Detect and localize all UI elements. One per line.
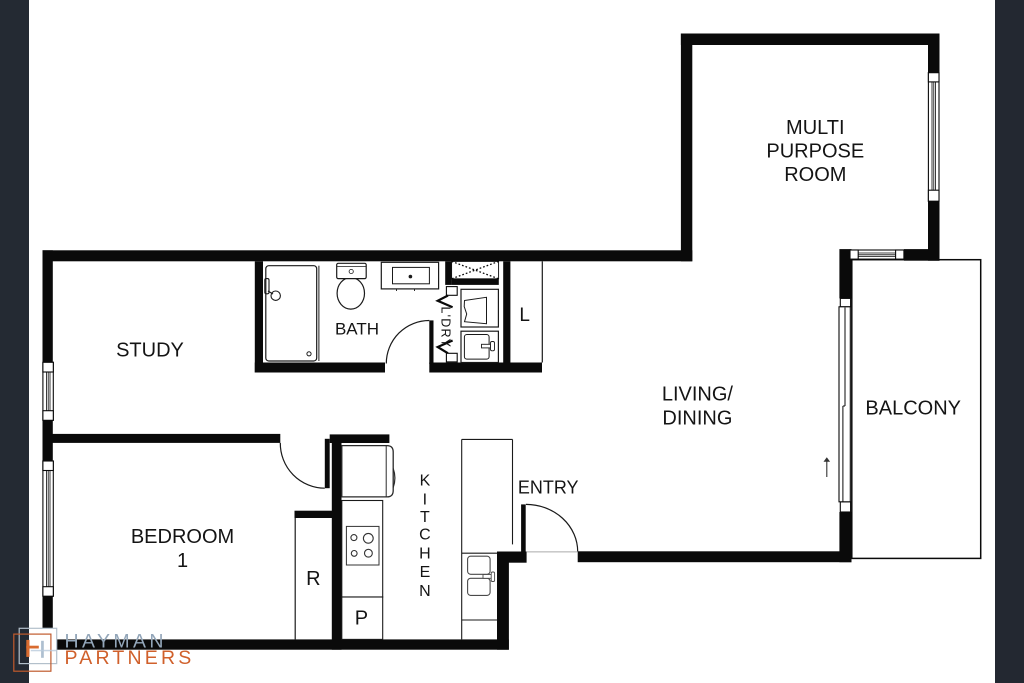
svg-text:STUDY: STUDY xyxy=(116,340,184,362)
svg-text:ENTRY: ENTRY xyxy=(518,478,579,498)
svg-text:BATH: BATH xyxy=(335,320,379,339)
svg-text:L'DRY: L'DRY xyxy=(438,307,452,349)
svg-text:L: L xyxy=(519,305,530,326)
svg-text:E: E xyxy=(420,564,431,581)
svg-text:C: C xyxy=(419,527,431,544)
svg-text:ROOM: ROOM xyxy=(784,164,846,186)
svg-text:BALCONY: BALCONY xyxy=(865,398,961,420)
svg-text:DINING: DINING xyxy=(662,407,732,429)
svg-text:T: T xyxy=(420,509,430,526)
svg-text:P: P xyxy=(355,607,368,629)
svg-text:I: I xyxy=(423,492,427,509)
svg-text:H: H xyxy=(419,545,431,562)
svg-text:LIVING/: LIVING/ xyxy=(662,383,734,405)
svg-text:K: K xyxy=(420,473,431,490)
svg-text:PURPOSE: PURPOSE xyxy=(766,140,864,162)
svg-text:1: 1 xyxy=(177,550,188,572)
svg-text:MULTI: MULTI xyxy=(786,117,845,139)
svg-text:R: R xyxy=(306,568,320,590)
svg-text:N: N xyxy=(419,583,431,600)
svg-text:BEDROOM: BEDROOM xyxy=(131,526,234,548)
svg-text:PARTNERS: PARTNERS xyxy=(65,647,195,669)
